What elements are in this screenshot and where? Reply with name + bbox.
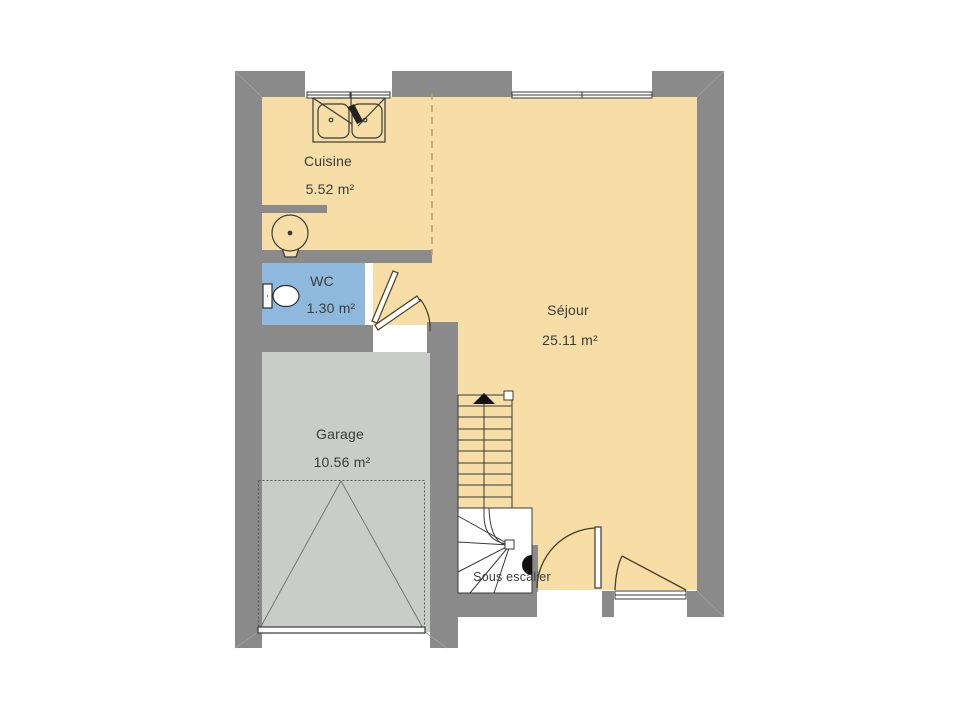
wall-left <box>235 71 262 648</box>
room-label-garage: Garage <box>316 426 364 442</box>
wall-hall-pillar <box>427 322 458 353</box>
wall-bottom-corner <box>687 591 724 617</box>
room-label-sous-escalier: Sous escalier <box>473 570 551 584</box>
room-area-garage: 10.56 m² <box>314 454 371 470</box>
floor-garage <box>258 352 430 632</box>
wall-top-segment-2 <box>392 71 512 97</box>
wall-garage-east <box>430 352 458 648</box>
wall-kitchen-stub <box>262 205 327 213</box>
floor-plan: Cuisine 5.52 m² WC 1.30 m² Séjour 25.11 … <box>0 0 960 720</box>
room-label-cuisine: Cuisine <box>304 153 352 169</box>
garage-doorway-gap <box>373 325 427 352</box>
wall-wc-south <box>235 325 373 352</box>
wc-doorway-gap <box>365 263 373 325</box>
wall-understair-stub <box>530 545 538 592</box>
wall-bottom-segment-1 <box>458 591 537 617</box>
room-label-sejour: Séjour <box>547 302 589 318</box>
room-label-wc: WC <box>310 273 334 289</box>
room-area-cuisine: 5.52 m² <box>306 181 355 197</box>
wall-right <box>697 71 724 617</box>
room-area-wc: 1.30 m² <box>307 300 356 316</box>
wall-top-segment-1 <box>235 71 305 97</box>
wall-bottom-pillar <box>602 591 614 617</box>
wall-cuisine-south <box>235 250 432 263</box>
room-area-sejour: 25.11 m² <box>542 332 598 348</box>
